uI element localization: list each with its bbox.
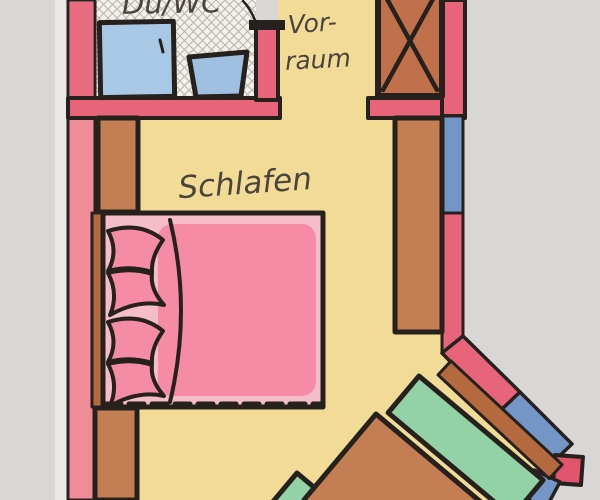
toilet-icon [189, 52, 247, 97]
cabinet-below-bed [95, 408, 137, 500]
shower-icon [99, 21, 174, 97]
bathroom-label: Du/WC [122, 0, 223, 21]
wall-bath-bottom [68, 98, 280, 118]
hallway-label-line2: raum [284, 43, 351, 75]
wardrobe-right [395, 118, 442, 332]
hallway-label-line1: Vor- [287, 7, 338, 39]
entry-door-box [378, 0, 442, 96]
double-bed [103, 213, 323, 407]
floor-plan-canvas: Du/WC Vor- raum Schlafen [0, 0, 600, 500]
floor-plan-photo: Du/WC Vor- raum Schlafen [0, 0, 600, 500]
wall-right-mid [442, 213, 463, 353]
wall-stub-bath-hall [256, 26, 278, 100]
paper-edge [55, 0, 68, 500]
window-right-icon [442, 116, 463, 213]
wardrobe-top-left [98, 118, 138, 212]
wall-right-top [442, 0, 465, 116]
